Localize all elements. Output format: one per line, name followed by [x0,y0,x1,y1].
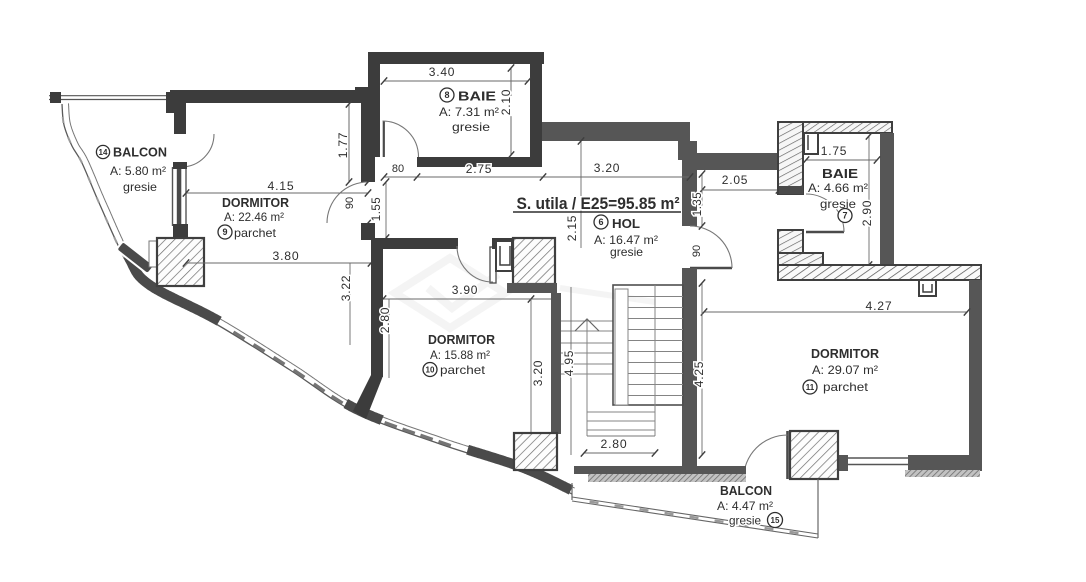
svg-text:3.20: 3.20 [531,360,545,387]
svg-text:2.90: 2.90 [860,200,874,227]
svg-text:gresie: gresie [820,197,856,211]
svg-text:gresie: gresie [610,245,643,259]
svg-text:11: 11 [806,383,815,392]
svg-text:parchet: parchet [234,226,277,240]
svg-text:BALCON: BALCON [720,483,772,498]
svg-text:15: 15 [771,516,780,525]
svg-text:80: 80 [392,163,404,175]
svg-text:10: 10 [426,366,435,375]
svg-text:3.90: 3.90 [452,283,479,297]
svg-text:2.80: 2.80 [601,437,628,451]
svg-text:HOL: HOL [612,216,640,231]
svg-text:14: 14 [99,148,108,157]
svg-text:90: 90 [344,197,356,209]
svg-text:A: 7.31 m²: A: 7.31 m² [439,105,499,119]
svg-text:3.40: 3.40 [429,65,456,79]
svg-text:8: 8 [444,90,449,100]
svg-text:7: 7 [842,211,847,221]
svg-text:90: 90 [691,245,703,257]
svg-text:1.77: 1.77 [336,132,350,159]
svg-text:A: 29.07 m²: A: 29.07 m² [812,363,878,377]
svg-text:gresie: gresie [452,120,490,134]
svg-text:6: 6 [598,217,603,227]
svg-text:1.55: 1.55 [371,197,383,221]
svg-text:9: 9 [222,227,227,237]
svg-text:2.10: 2.10 [499,89,513,116]
svg-text:4.25: 4.25 [692,361,706,388]
svg-text:4.95: 4.95 [562,350,576,377]
svg-text:3.20: 3.20 [594,161,621,175]
svg-text:4.27: 4.27 [866,299,893,313]
svg-text:gresie: gresie [123,180,157,194]
svg-text:parchet: parchet [440,363,486,377]
svg-text:2.15: 2.15 [565,215,579,242]
svg-text:A: 4.47 m²: A: 4.47 m² [717,499,773,513]
svg-text:1.75: 1.75 [821,144,848,158]
svg-text:DORMITOR: DORMITOR [428,332,496,347]
svg-text:3.22: 3.22 [339,275,353,302]
svg-text:BAIE: BAIE [458,89,496,104]
svg-text:S. utila / E25=95.85 m²: S. utila / E25=95.85 m² [517,194,680,213]
svg-text:2.75: 2.75 [466,162,493,176]
svg-text:2.05: 2.05 [722,173,749,187]
svg-text:A: 5.80 m²: A: 5.80 m² [110,164,166,178]
svg-text:4.15: 4.15 [268,179,295,193]
svg-text:2.80: 2.80 [378,307,392,334]
svg-text:DORMITOR: DORMITOR [222,195,290,210]
svg-text:3.80: 3.80 [273,249,300,263]
svg-text:DORMITOR: DORMITOR [811,346,880,361]
svg-text:BALCON: BALCON [113,145,167,160]
svg-text:A: 4.66 m²: A: 4.66 m² [808,181,868,195]
svg-text:BAIE: BAIE [822,166,858,181]
svg-text:gresie: gresie [729,514,761,528]
svg-text:A: 22.46 m²: A: 22.46 m² [224,210,284,224]
svg-text:1.35: 1.35 [692,192,704,216]
svg-text:A: 15.88 m²: A: 15.88 m² [430,348,490,362]
svg-text:parchet: parchet [823,380,869,394]
